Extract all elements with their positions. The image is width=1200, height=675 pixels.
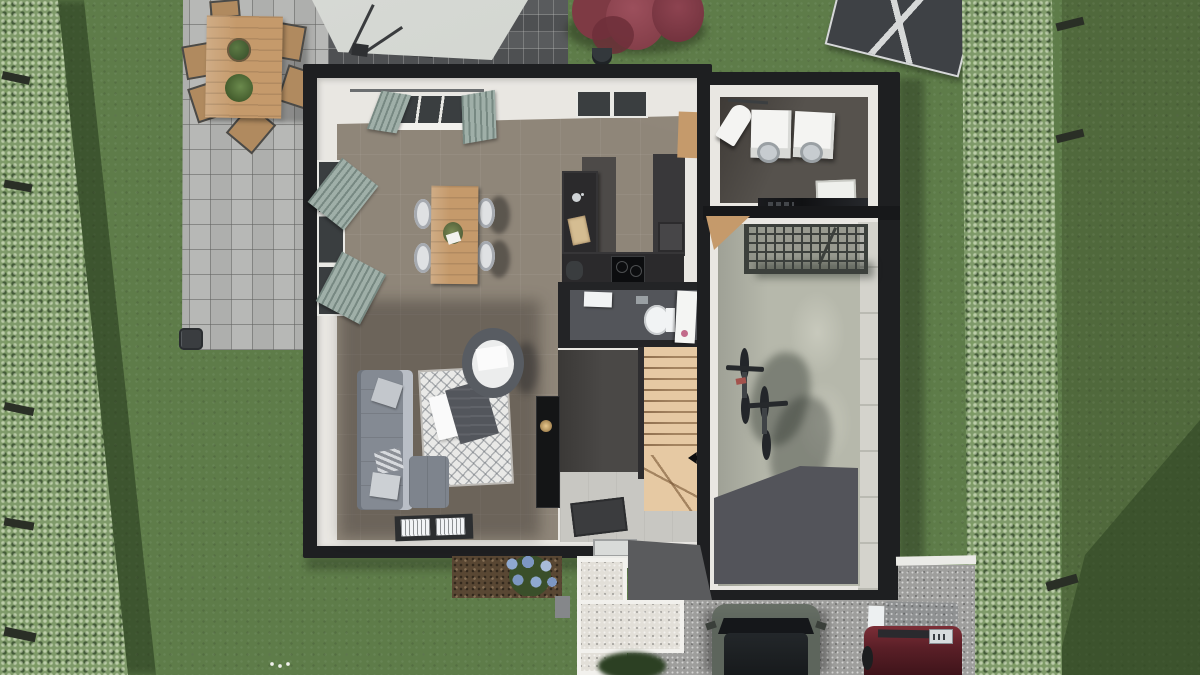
kitchen-pot <box>566 261 583 280</box>
outdoor-table <box>205 15 283 118</box>
sofa-pillow <box>369 472 400 500</box>
dining-chair <box>477 241 495 271</box>
red-car-wheel <box>862 646 873 670</box>
curtain-panel <box>461 90 496 144</box>
bike-wheel <box>762 430 771 460</box>
cooktop-burner <box>616 261 628 273</box>
parasol-base <box>351 43 369 57</box>
cooktop-burner <box>630 265 642 277</box>
floor-window-pane <box>401 518 431 536</box>
dark-car-windshield <box>718 618 814 634</box>
hydrangea <box>500 556 562 596</box>
table-plant-1 <box>227 38 251 62</box>
wc-basin <box>584 292 613 308</box>
white-flowers <box>268 660 294 672</box>
kitchen-counter <box>596 157 616 257</box>
staircase <box>644 347 700 459</box>
dining-chair <box>414 199 432 229</box>
hall-partition-wall <box>558 350 640 472</box>
tv-column-lamp <box>540 420 552 432</box>
table-plant-2 <box>225 74 253 102</box>
floorplan-render <box>0 0 1200 675</box>
grey-post <box>555 596 570 618</box>
floor-window-pane <box>436 517 466 535</box>
license-plate <box>930 630 952 643</box>
dark-car-roof <box>724 633 808 675</box>
bike-frame <box>762 408 767 434</box>
curtain-rod <box>350 89 484 92</box>
armchair-blanket <box>476 345 509 371</box>
wire-storage-rack <box>744 224 868 274</box>
wc-soap <box>681 330 688 337</box>
kitchen-island <box>562 171 598 257</box>
curb <box>896 555 976 565</box>
dining-chair <box>414 243 432 273</box>
doormat <box>570 497 628 537</box>
bike-frame <box>742 372 747 398</box>
kitchen-window <box>576 90 648 118</box>
island-faucet <box>572 193 581 202</box>
gravel-path-horizontal <box>577 600 684 653</box>
dark-bush <box>598 652 666 675</box>
tv-column <box>536 396 560 508</box>
stair-winders <box>644 455 700 511</box>
cabinet-niche <box>658 222 684 252</box>
toilet-tank <box>666 308 675 332</box>
dining-chair <box>477 198 495 228</box>
wc-paper-holder <box>636 296 648 304</box>
barbecue <box>179 328 203 350</box>
sofa-chaise <box>409 456 449 508</box>
house-shadow-right <box>898 78 924 560</box>
